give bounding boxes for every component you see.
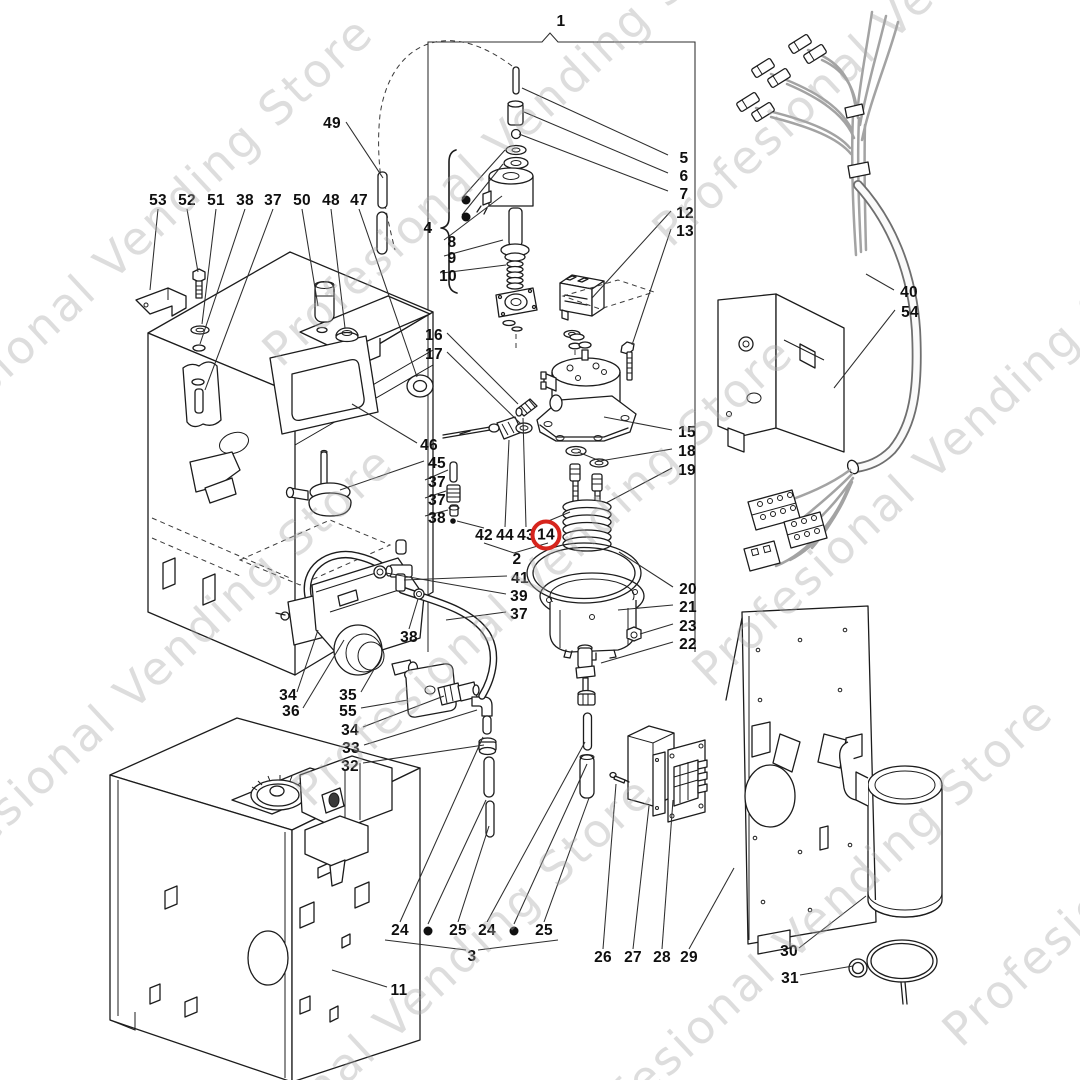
part-label-51-11: 51 <box>207 192 225 210</box>
part-label-54-7: 54 <box>901 304 919 322</box>
exploded-parts-diagram: 1567121340544953525138375048474891016171… <box>0 0 1080 1080</box>
part-label-33-49: 33 <box>342 740 360 758</box>
part-label-31-61: 31 <box>781 970 799 988</box>
part-label-41-36: 41 <box>511 570 529 588</box>
part-label-38-30: 38 <box>428 510 446 528</box>
part-label-1-0: 1 <box>557 13 566 31</box>
part-label-20-40: 20 <box>679 581 697 599</box>
part-label-6-2: 6 <box>680 168 689 186</box>
part-label-27-57: 27 <box>624 949 642 967</box>
part-label-50-14: 50 <box>293 192 311 210</box>
part-label-55-47: 55 <box>339 703 357 721</box>
part-label-37-28: 37 <box>428 474 446 492</box>
part-label-25-52: 25 <box>449 922 467 940</box>
part-label-29-59: 29 <box>680 949 698 967</box>
bullet-marker-2 <box>424 927 433 936</box>
part-label-37-13: 37 <box>264 192 282 210</box>
bullet-marker-0 <box>462 196 471 205</box>
part-label-2-35: 2 <box>513 551 522 569</box>
part-label-4-17: 4 <box>424 220 433 238</box>
part-label-11-62: 11 <box>391 982 408 1000</box>
part-label-17-22: 17 <box>425 346 443 364</box>
part-label-38-39: 38 <box>400 629 418 647</box>
part-label-52-10: 52 <box>178 192 196 210</box>
part-label-16-21: 16 <box>425 327 443 345</box>
part-label-18-24: 18 <box>678 443 696 461</box>
part-label-3-55: 3 <box>468 948 477 966</box>
part-label-44-32: 44 <box>496 527 514 545</box>
part-label-37-38: 37 <box>510 606 528 624</box>
part-label-53-9: 53 <box>149 192 167 210</box>
part-label-36-46: 36 <box>282 703 300 721</box>
part-label-28-58: 28 <box>653 949 671 967</box>
part-label-40-6: 40 <box>900 284 918 302</box>
part-label-12-4: 12 <box>676 205 694 223</box>
part-label-24-51: 24 <box>391 922 409 940</box>
part-label-25-54: 25 <box>535 922 553 940</box>
part-label-39-37: 39 <box>510 588 528 606</box>
part-label-26-56: 26 <box>594 949 612 967</box>
part-label-13-5: 13 <box>676 223 694 241</box>
part-label-9-19: 9 <box>448 250 457 268</box>
part-label-15-23: 15 <box>678 424 696 442</box>
part-label-45-27: 45 <box>428 455 446 473</box>
part-label-47-16: 47 <box>350 192 368 210</box>
part-label-22-43: 22 <box>679 636 697 654</box>
part-label-42-31: 42 <box>475 527 493 545</box>
part-label-48-15: 48 <box>322 192 340 210</box>
part-label-23-42: 23 <box>679 618 697 636</box>
part-label-10-20: 10 <box>439 268 457 286</box>
part-label-46-26: 46 <box>420 437 438 455</box>
part-label-34-48: 34 <box>341 722 359 740</box>
part-label-38-12: 38 <box>236 192 254 210</box>
part-label-5-1: 5 <box>680 150 689 168</box>
part-label-30-60: 30 <box>780 943 798 961</box>
part-label-24-53: 24 <box>478 922 496 940</box>
part-label-37-29: 37 <box>428 492 446 510</box>
part-label-14-34: 14 <box>531 520 562 551</box>
bullet-marker-3 <box>510 927 519 936</box>
part-label-49-8: 49 <box>323 115 341 133</box>
bullet-marker-1 <box>462 213 471 222</box>
part-label-19-25: 19 <box>678 462 696 480</box>
part-label-7-3: 7 <box>680 186 689 204</box>
part-label-21-41: 21 <box>679 599 697 617</box>
part-label-32-50: 32 <box>341 758 359 776</box>
callout-layer: 1567121340544953525138375048474891016171… <box>0 0 1080 1080</box>
